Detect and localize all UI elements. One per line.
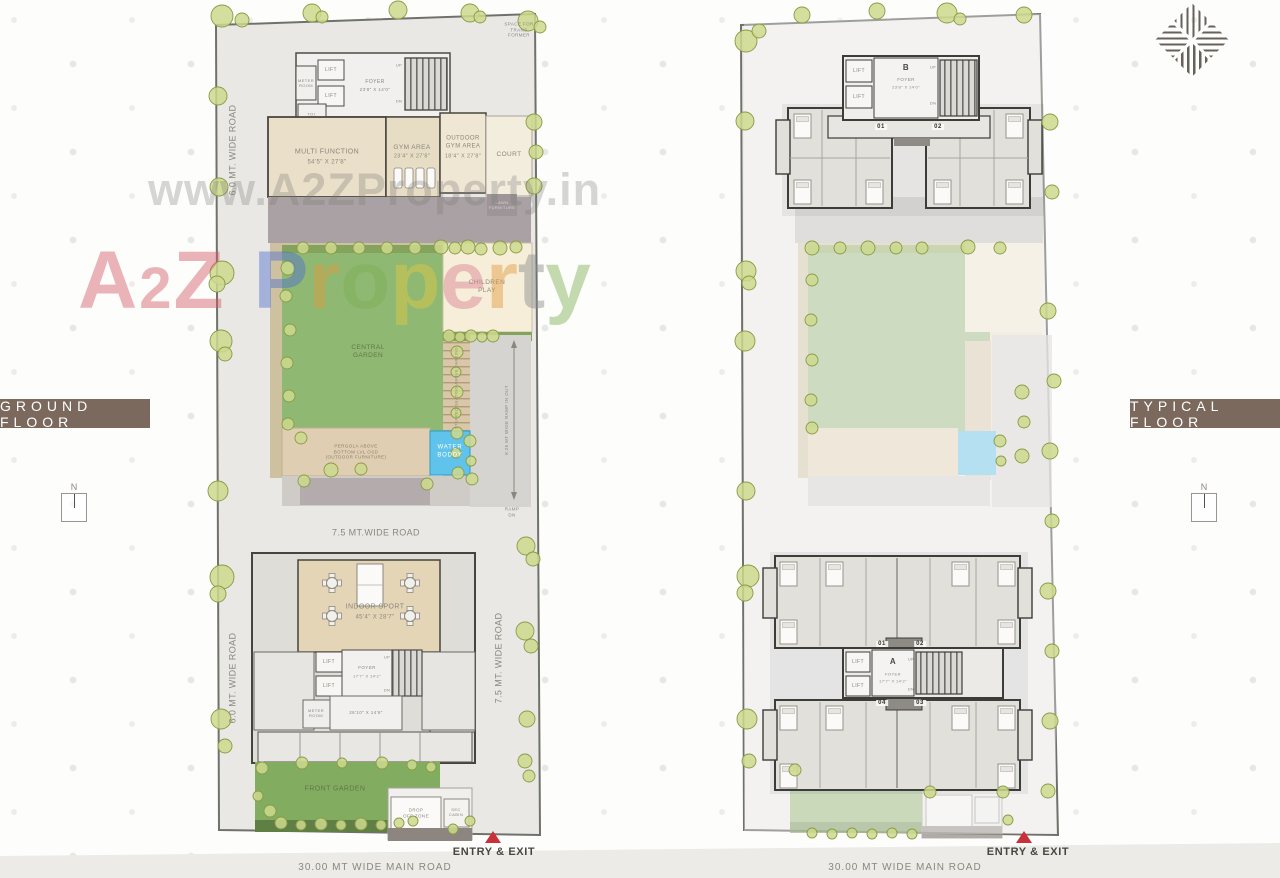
sec-cabin-label: SEC CABIN (449, 807, 463, 817)
gym-area-dim: 23'4" X 27'8" (394, 154, 430, 161)
brand-watermark: A2ZProperty (78, 240, 591, 322)
north-letter-left: N (71, 482, 78, 492)
outdoor-gym-label: OUTDOOR GYM AREA (446, 136, 481, 151)
lower-meter-label: METER ROOM (308, 708, 324, 718)
url-watermark: www.A2ZProperty.in (148, 164, 601, 216)
typical-floor-badge: TYPICAL FLOOR (1130, 399, 1280, 428)
tower-a-up-label: UP (908, 657, 914, 662)
tower-b-foyer-label: FOYER (897, 77, 915, 83)
ground-floor-plot (208, 1, 546, 843)
indoor-sport-label: INDOOR SPORT (346, 604, 405, 613)
tower-a-label: A (890, 657, 896, 667)
north-box-left (61, 493, 87, 522)
tower-b-unit-02: 02 (932, 124, 944, 130)
front-garden-label: FRONT GARDEN (305, 786, 366, 795)
tower-b-lift1-label: LIFT (853, 68, 865, 74)
entry-exit-label-left: ENTRY & EXIT (453, 846, 535, 860)
transformer-note: SPACE FOR TRANS FORMER (504, 22, 533, 39)
club-meter-room-label: METER ROOM (298, 78, 314, 88)
ground-floor-badge: GROUND FLOOR (0, 399, 150, 428)
multi-function-label: MULTI FUNCTION (295, 149, 359, 158)
lower-up-label: UP (384, 655, 390, 660)
pergola-note: PERGOLA ABOVE BOTTOM LVL OSD (OUTDOOR FU… (326, 444, 387, 461)
tower-b-unit-01: 01 (875, 124, 887, 130)
entry-exit-label-right: ENTRY & EXIT (987, 846, 1069, 860)
lower-dn-label: DN (384, 688, 391, 693)
club-foyer-label: FOYER (365, 79, 384, 85)
tower-a-lift2-label: LIFT (852, 683, 864, 689)
outdoor-gym-dim: 18'4" X 27'8" (445, 154, 481, 161)
north-letter-right: N (1201, 482, 1208, 492)
drop-off-zone-label: DROP OFF ZONE (403, 807, 429, 818)
tower-b-foyer-dim: 23'8" X 14'0" (892, 85, 920, 90)
main-road-label-left: 30.00 MT WIDE MAIN ROAD (298, 862, 451, 875)
club-up-label: UP (396, 63, 402, 68)
lower-lift2-label: LIFT (323, 683, 335, 689)
lower-hall-dim: 26'10" X 14'6" (349, 710, 383, 716)
main-road-label-right: 30.00 MT WIDE MAIN ROAD (828, 862, 981, 875)
tower-a-unit-04: 04 (876, 700, 888, 706)
tower-a-dn-label: DN (908, 687, 915, 692)
indoor-sport-dim: 45'4" X 28'7" (355, 614, 394, 622)
lower-lift1-label: LIFT (323, 659, 335, 665)
club-foyer-dim: 23'8" X 14'0" (360, 87, 391, 93)
road-label-right-vertical: 7.5 MT. WIDE ROAD (493, 613, 504, 704)
tower-a-unit-03: 03 (914, 700, 926, 706)
tower-b-label: B (903, 63, 909, 73)
lower-foyer-label: FOYER (358, 665, 376, 671)
plan-graphics (0, 0, 1280, 878)
tower-a-lift1-label: LIFT (852, 659, 864, 665)
stepped-seating-note: STEPPED SEATING ABOVE PARKING (454, 347, 459, 429)
water-body-label: WATER BODDY (437, 445, 462, 460)
tower-b-lift2-label: LIFT (853, 94, 865, 100)
ramp-dn-label: RAMP DN (505, 506, 520, 517)
typical-floor-plot (735, 3, 1061, 843)
tower-a-foyer-dim: 17'7" X 14'2" (879, 679, 907, 684)
club-toi-label: TOI. (307, 112, 316, 117)
club-lift1-label: LIFT (325, 67, 337, 73)
tower-a-unit-01: 01 (876, 641, 888, 647)
tower-a-unit-02: 02 (914, 641, 926, 647)
court-label: COURT (497, 151, 522, 159)
lower-foyer-dim: 17'7" X 14'2" (353, 674, 381, 679)
club-dn-label: DN (396, 99, 403, 104)
club-lift2-label: LIFT (325, 93, 337, 99)
central-garden-label: CENTRAL GARDEN (351, 344, 384, 360)
gym-area-label: GYM AREA (393, 144, 430, 152)
floor-plan-sheet: 6.0 MT. WIDE ROAD 6.0 MT. WIDE ROAD 7.5 … (0, 0, 1280, 878)
north-indicator-right: N (1191, 482, 1217, 522)
tower-b-dn-label: DN (930, 101, 937, 106)
ramp-side-label: 8.25 MT WIDE RAMP IN OUT (504, 385, 510, 455)
road-label-bottom-left: 6.0 MT. WIDE ROAD (227, 633, 238, 724)
road-label-mid: 7.5 MT.WIDE ROAD (332, 527, 420, 538)
tower-a-foyer-label: FOYER (885, 672, 901, 677)
north-box-right (1191, 493, 1217, 522)
north-indicator-left: N (61, 482, 87, 522)
tower-b-up-label: UP (930, 65, 936, 70)
